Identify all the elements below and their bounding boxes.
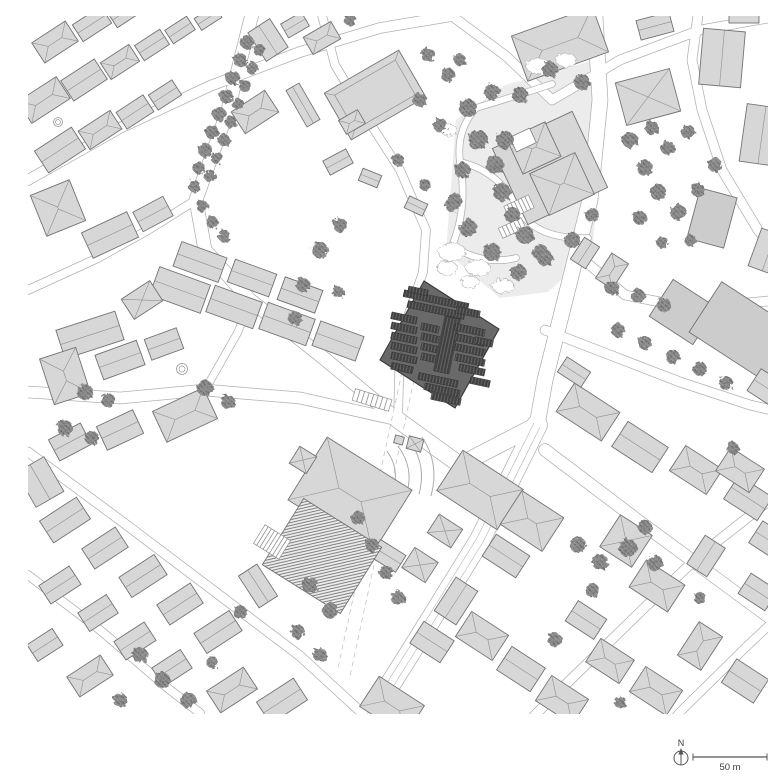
tree: [154, 672, 170, 688]
tree: [206, 656, 218, 668]
tree: [611, 323, 625, 337]
bush: [461, 276, 479, 288]
tree: [661, 141, 675, 155]
tree: [570, 537, 586, 553]
tree: [211, 152, 223, 164]
tree: [459, 99, 477, 117]
tree: [441, 68, 455, 82]
tree: [413, 93, 427, 107]
tree: [225, 116, 237, 128]
tree: [496, 131, 514, 149]
tree: [196, 200, 208, 212]
roundabout: [54, 118, 63, 127]
bush: [437, 261, 457, 275]
tree: [233, 605, 247, 619]
tree: [197, 380, 213, 396]
tree: [206, 216, 218, 228]
tree: [512, 87, 528, 103]
tree: [650, 184, 666, 200]
building: [699, 28, 746, 87]
roundabout: [177, 364, 188, 375]
tree: [585, 208, 599, 222]
tree: [548, 633, 562, 647]
tree: [484, 84, 500, 100]
tree: [239, 80, 251, 92]
tree: [504, 207, 520, 223]
tree: [180, 692, 196, 708]
tree: [691, 183, 705, 197]
tree: [694, 592, 706, 604]
tree: [253, 44, 265, 56]
tree: [198, 143, 212, 157]
tree: [188, 180, 200, 192]
tree: [391, 591, 405, 605]
tree: [246, 62, 258, 74]
tree: [218, 134, 230, 146]
tree: [493, 183, 511, 201]
tree: [312, 242, 328, 258]
bush: [492, 279, 514, 293]
tree: [637, 160, 653, 176]
tree: [468, 130, 488, 150]
tree: [57, 420, 73, 436]
building: [394, 435, 405, 445]
tree: [445, 198, 459, 212]
tree: [693, 362, 707, 376]
tree: [622, 132, 638, 148]
bush: [556, 53, 576, 67]
tree: [633, 211, 647, 225]
tree: [240, 35, 254, 49]
tree: [419, 179, 431, 191]
tree: [708, 158, 722, 172]
tree: [510, 264, 526, 280]
tree: [585, 583, 599, 597]
tree: [132, 647, 148, 663]
tree: [454, 162, 470, 178]
tree: [542, 62, 558, 78]
tree: [670, 204, 686, 220]
tree: [322, 602, 338, 618]
site-plan-map: N 50 m: [0, 0, 780, 780]
bush: [466, 260, 490, 276]
tree: [433, 118, 447, 132]
tree: [631, 289, 645, 303]
tree: [638, 520, 652, 534]
tree: [532, 244, 548, 260]
tree: [574, 74, 590, 90]
north-label: N: [678, 738, 685, 748]
site-plan-page: N 50 m: [0, 0, 780, 780]
tree: [233, 53, 247, 67]
tree: [218, 230, 230, 242]
tree: [657, 298, 671, 312]
tree: [516, 226, 534, 244]
tree: [483, 243, 501, 261]
tree: [421, 48, 435, 62]
tree: [647, 555, 663, 571]
tree: [193, 162, 205, 174]
tree: [291, 625, 305, 639]
tree: [365, 538, 379, 552]
tree: [459, 219, 477, 237]
tree: [226, 71, 240, 85]
tree: [656, 236, 668, 248]
tree: [614, 696, 626, 708]
tree: [454, 54, 466, 66]
tree: [101, 393, 115, 407]
scale-label: 50 m: [719, 762, 740, 773]
tree: [205, 125, 219, 139]
tree: [219, 89, 233, 103]
tree: [666, 350, 680, 364]
tree: [302, 577, 318, 593]
tree: [619, 539, 637, 557]
building-footprint: [394, 435, 405, 445]
tree: [221, 395, 235, 409]
tree: [288, 311, 302, 325]
tree: [564, 232, 580, 248]
tree: [333, 218, 347, 232]
tree: [645, 121, 659, 135]
tree: [113, 693, 127, 707]
tree: [684, 234, 696, 246]
tree: [313, 648, 327, 662]
tree: [392, 154, 404, 166]
tree: [379, 565, 393, 579]
tree: [719, 376, 733, 390]
tree: [332, 286, 344, 298]
tree: [605, 281, 619, 295]
tree: [351, 511, 365, 525]
tree: [296, 278, 310, 292]
tree: [212, 107, 226, 121]
tree: [592, 554, 608, 570]
tree: [486, 156, 504, 174]
tree: [727, 442, 739, 454]
tree: [85, 431, 99, 445]
tree: [681, 125, 695, 139]
tree: [204, 170, 216, 182]
tree: [232, 98, 244, 110]
tree: [638, 336, 652, 350]
tree: [77, 384, 93, 400]
bush: [438, 243, 466, 261]
